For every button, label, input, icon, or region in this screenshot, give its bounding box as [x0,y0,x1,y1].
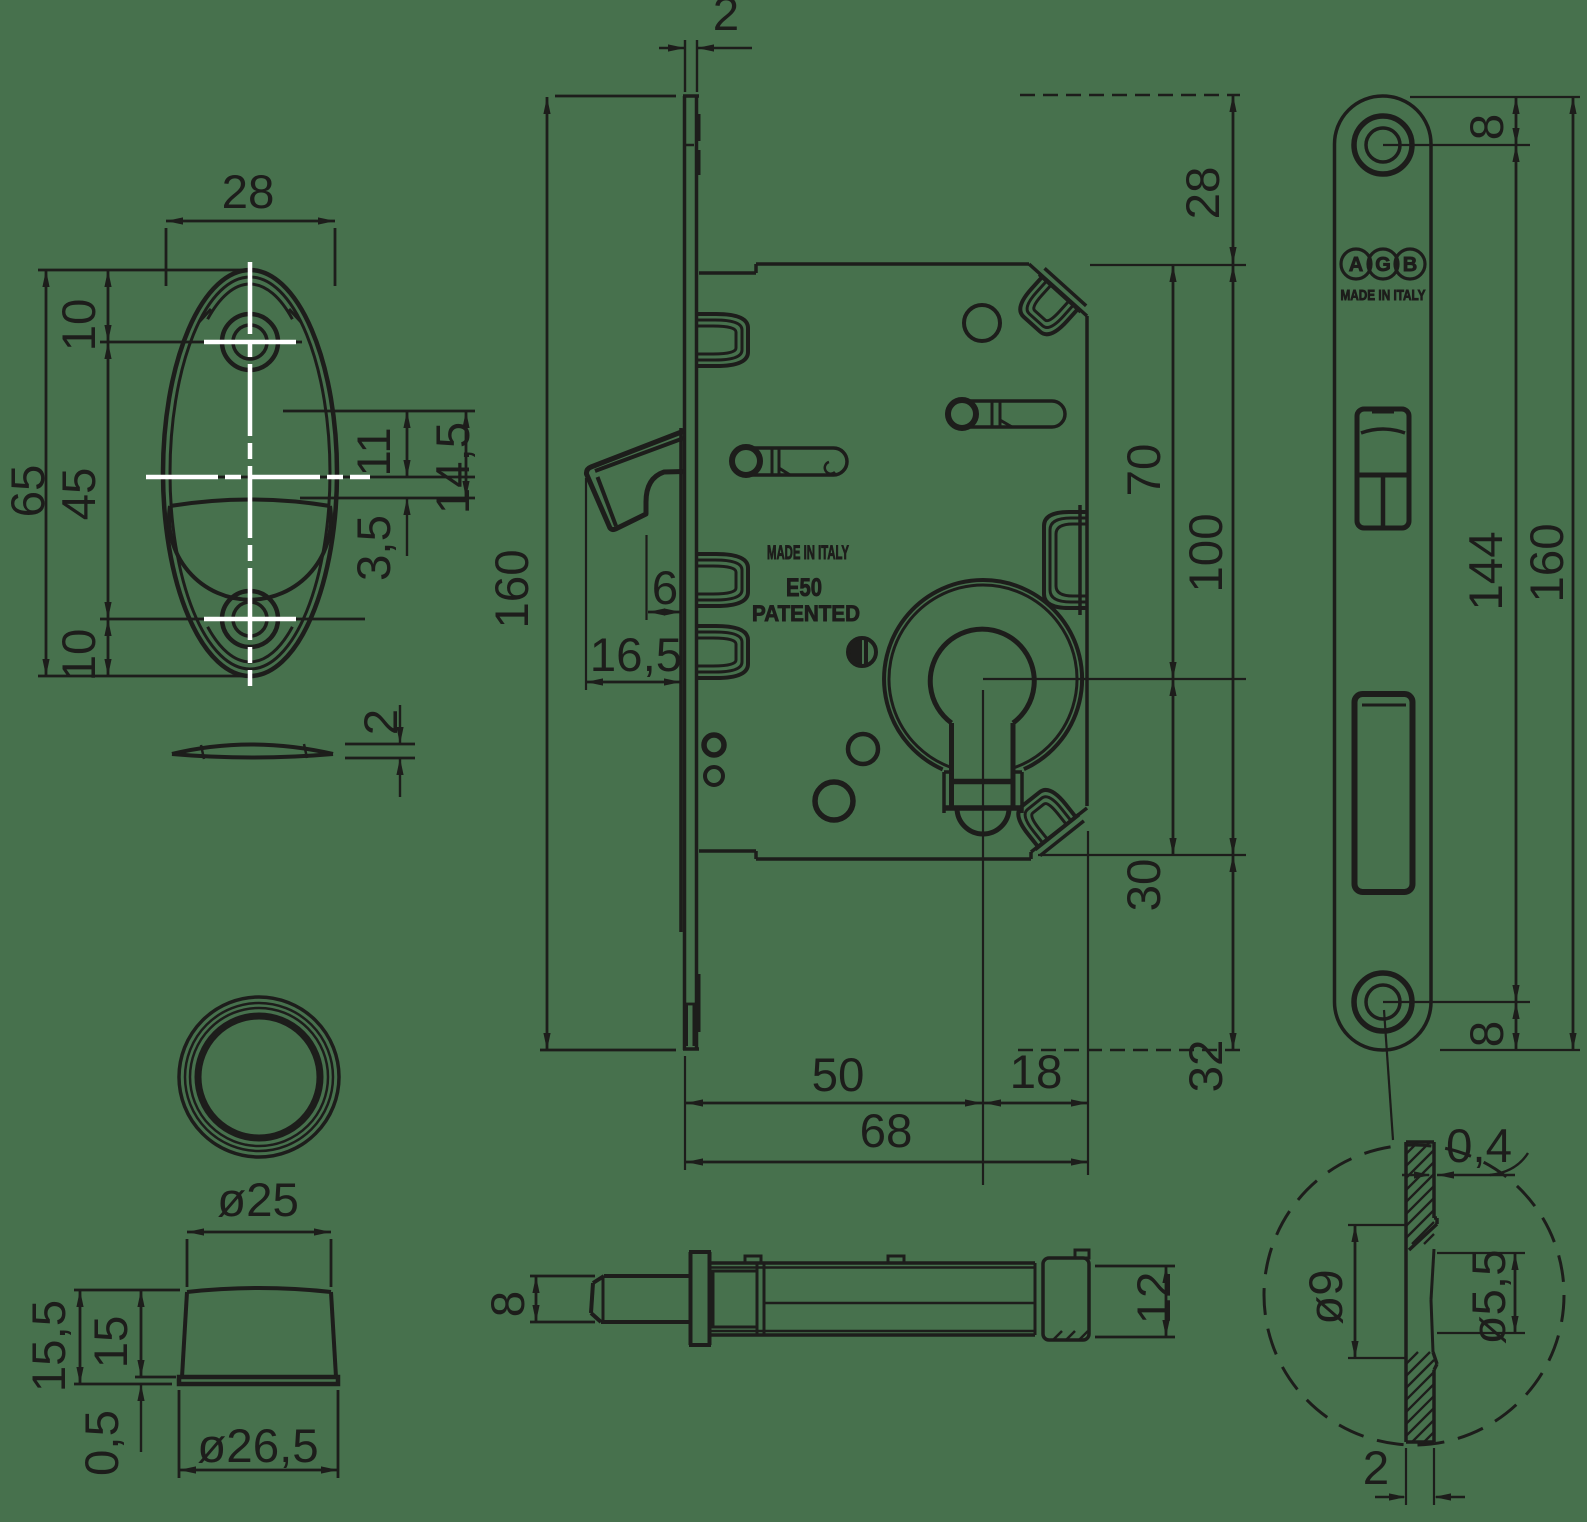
svg-text:0,5: 0,5 [76,1410,129,1476]
svg-text:ø5,5: ø5,5 [1463,1249,1516,1344]
svg-text:14,5: 14,5 [427,422,480,514]
svg-text:ø9: ø9 [1300,1269,1353,1324]
svg-text:18: 18 [1010,1046,1063,1099]
svg-text:100: 100 [1180,513,1233,592]
svg-text:144: 144 [1460,531,1513,610]
svg-text:28: 28 [222,166,275,219]
svg-text:E50: E50 [786,574,822,602]
svg-text:A: A [1349,254,1363,276]
svg-text:15: 15 [85,1316,138,1369]
svg-text:6: 6 [652,562,678,615]
svg-text:30: 30 [1118,859,1171,912]
svg-text:2: 2 [1363,1442,1389,1495]
svg-text:8: 8 [482,1291,535,1317]
svg-text:45: 45 [53,468,106,521]
svg-text:0,4: 0,4 [1446,1120,1512,1173]
svg-text:32: 32 [1180,1040,1233,1093]
svg-text:12: 12 [1128,1272,1181,1325]
svg-text:10: 10 [53,299,106,352]
svg-text:8: 8 [1461,1021,1514,1047]
svg-text:B: B [1403,254,1417,276]
svg-text:15,5: 15,5 [23,1300,76,1392]
svg-text:G: G [1375,254,1391,276]
svg-text:160: 160 [486,549,539,628]
svg-text:ø25: ø25 [217,1174,299,1227]
svg-text:3,5: 3,5 [348,515,401,581]
svg-text:PATENTED: PATENTED [752,601,860,626]
svg-text:ø26,5: ø26,5 [197,1420,318,1473]
svg-text:2: 2 [355,709,408,735]
svg-text:10: 10 [53,629,106,682]
svg-text:MADE IN ITALY: MADE IN ITALY [767,543,849,564]
svg-text:8: 8 [1461,114,1514,140]
svg-text:65: 65 [2,465,55,518]
svg-text:70: 70 [1118,444,1171,497]
svg-text:160: 160 [1521,523,1574,602]
svg-text:28: 28 [1177,167,1230,220]
svg-text:16,5: 16,5 [590,629,682,682]
svg-text:2: 2 [713,0,739,41]
svg-text:50: 50 [812,1049,865,1102]
svg-text:MADE IN ITALY: MADE IN ITALY [1341,287,1426,304]
svg-text:68: 68 [860,1105,913,1158]
svg-text:11: 11 [348,427,401,476]
